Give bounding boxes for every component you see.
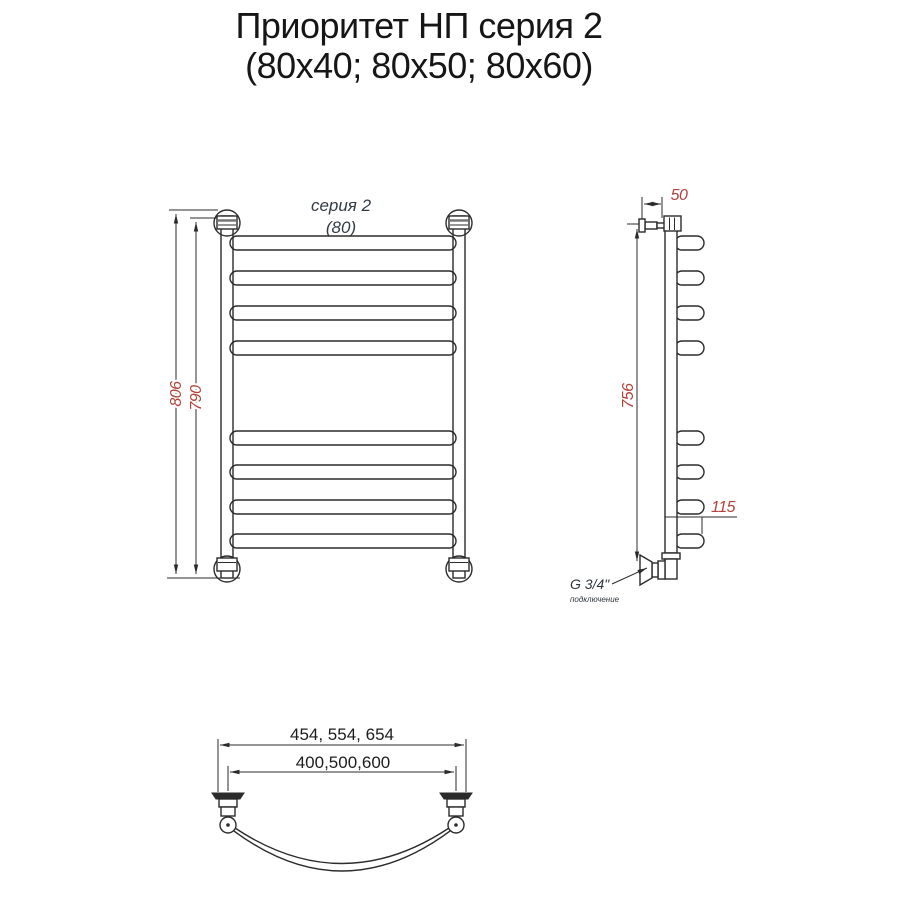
tube-end [665,559,677,579]
curved-rung-outer [234,831,450,871]
rung-side [675,306,704,320]
dimension-text-115: 115 [711,499,736,516]
dimension-text-806: 806 [168,381,185,407]
title-block: Приоритет НП серия 2 (80x40; 80x50; 80x6… [235,5,602,86]
curved-rung-inner [235,828,449,864]
drawing-page: Приоритет НП серия 2 (80x40; 80x50; 80x6… [0,0,900,900]
rung-side [675,500,704,514]
bracket-rod [645,222,657,229]
side-rungs [675,236,704,548]
dimension-text-50: 50 [671,187,688,204]
collar-cap [449,216,469,229]
coupling [662,553,680,559]
rung [230,271,456,285]
connection-label-text: подключение [570,595,620,604]
dimension-text-outer-widths: 454, 554, 654 [290,725,394,744]
collar-cap [217,558,237,571]
dimension-text-center-widths: 400,500,600 [296,753,391,772]
technical-drawing: Приоритет НП серия 2 (80x40; 80x50; 80x6… [0,0,900,900]
rung [230,236,456,250]
page-title-line1: Приоритет НП серия 2 [235,5,602,46]
side-view: 50 756 115 [570,187,737,604]
page-title-line2: (80x40; 80x50; 80x60) [245,45,593,86]
collar-cap [449,558,469,571]
mount-stem [219,799,237,807]
rung [230,431,456,445]
rung [230,341,456,355]
mount-stem [447,799,465,807]
rung [230,306,456,320]
connection-thread-text: G 3/4" [570,576,610,592]
rung-side [675,465,704,479]
dimension-text-790: 790 [188,385,205,411]
front-rungs [230,236,456,548]
rung-side [675,431,704,445]
mount-stem [449,807,463,816]
wall-flange [440,793,472,799]
front-view: серия 2 (80) [167,196,472,582]
rung [230,500,456,514]
left-collector-tube [221,216,233,578]
collar-cap [217,216,237,229]
center-mark [226,823,230,827]
dimension-text-756: 756 [620,383,637,409]
rung-side [675,236,704,250]
wall-flange [212,793,244,799]
top-wall-bracket [639,216,681,232]
tube-cap [664,216,681,231]
width-label: (80) [326,218,356,237]
mounting-collars [214,210,472,582]
rung-side [675,341,704,355]
mount-stem [221,807,235,816]
rung [230,465,456,479]
bottom-view: 454, 554, 654 400,500,600 [212,725,472,871]
valve-body [658,561,665,579]
rung [230,534,456,548]
wall-plate [639,219,645,232]
rung-side [675,271,704,285]
valve-stem [652,563,658,577]
rung-side [675,534,704,548]
side-collector-tube [665,217,677,553]
wall-mount-right [440,793,472,833]
center-mark [454,823,458,827]
wall-mount-left [212,793,244,833]
right-collector-tube [453,216,465,578]
series-label: серия 2 [311,196,372,215]
